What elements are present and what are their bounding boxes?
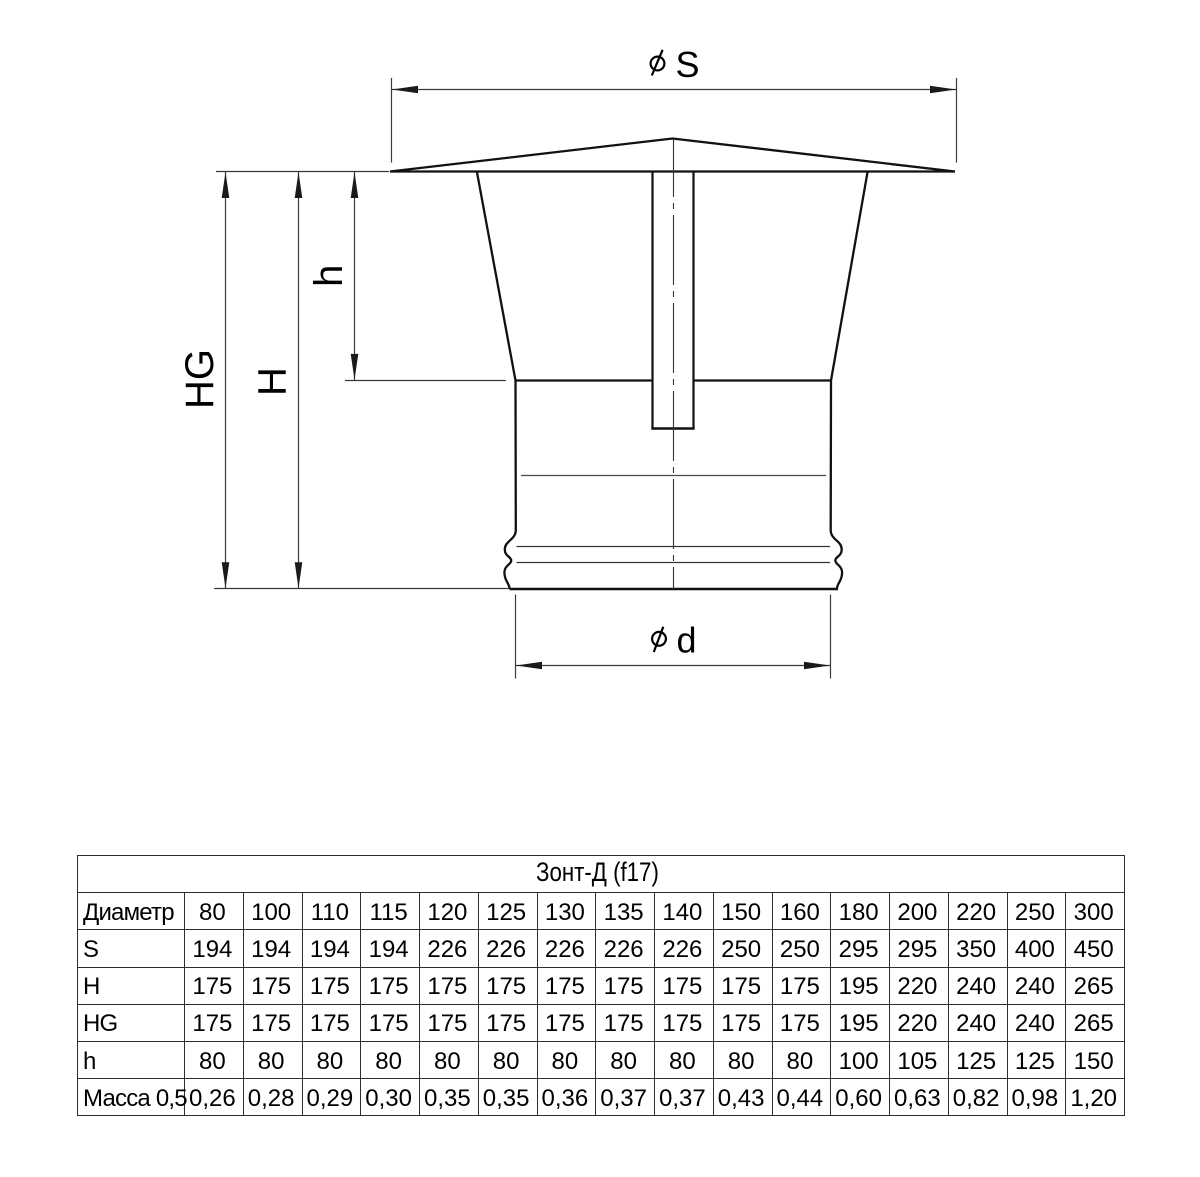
svg-text:HG: HG <box>178 349 222 409</box>
svg-text:d: d <box>676 620 696 661</box>
svg-text:S: S <box>675 44 699 85</box>
svg-text:H: H <box>251 367 295 396</box>
svg-text:h: h <box>307 265 351 287</box>
